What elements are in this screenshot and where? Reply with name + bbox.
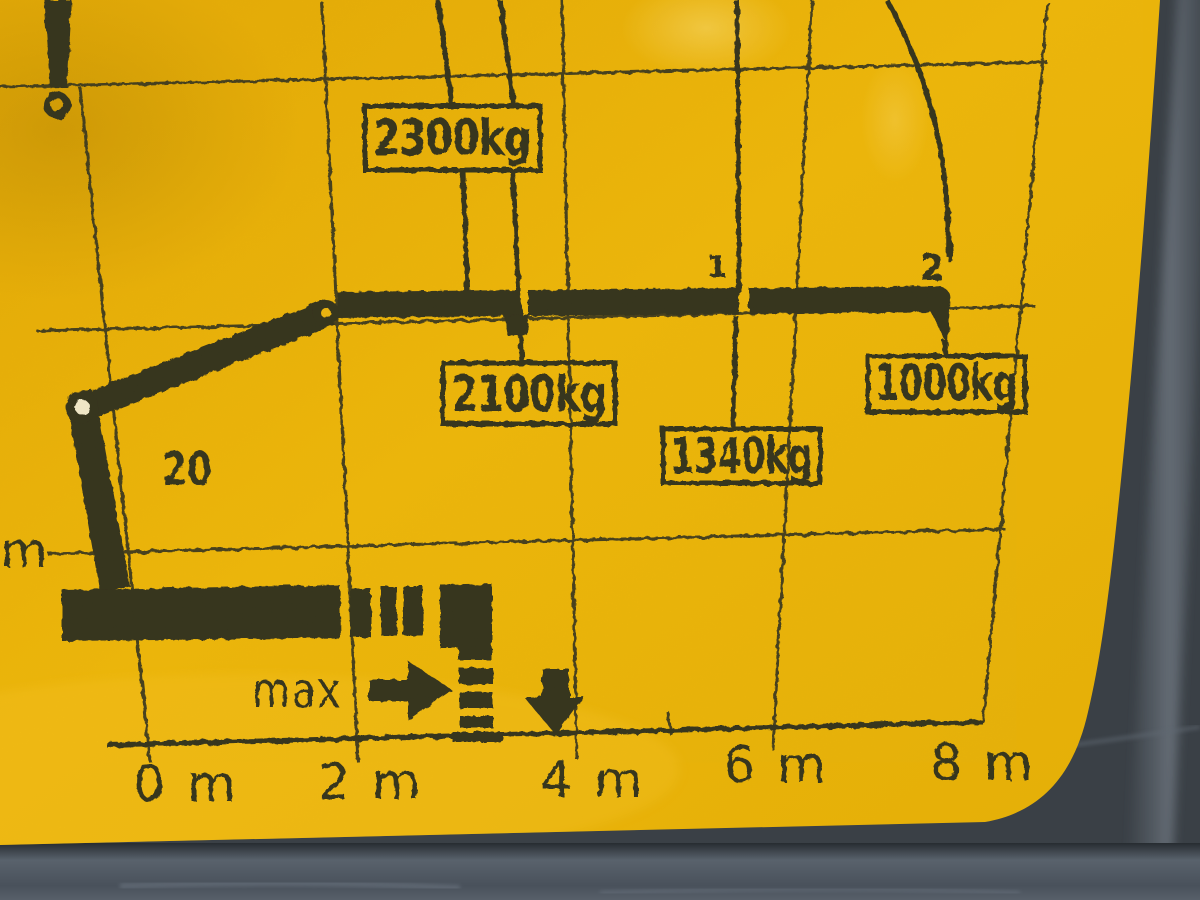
load-chart-svg: 2300kg 2100kg 1340kg 1000kg 1 2 20 max 0… [0,0,1200,900]
sticker-grain-texture [0,0,1200,860]
crane-load-chart-photo: 2300kg 2100kg 1340kg 1000kg 1 2 20 max 0… [0,0,1200,900]
